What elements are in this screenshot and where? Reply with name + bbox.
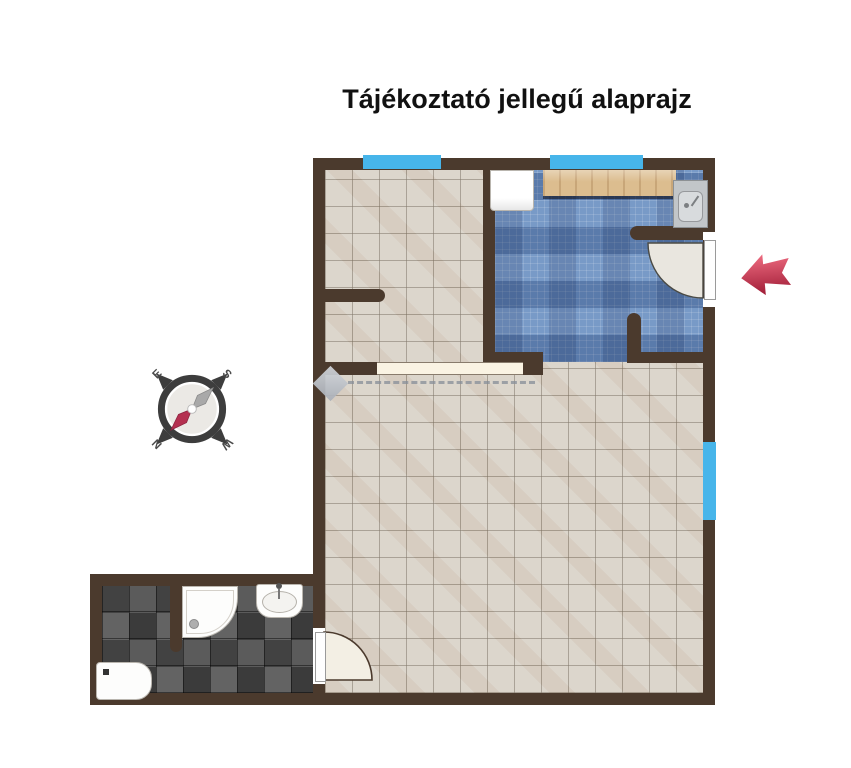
entrance-arrow-shape <box>739 252 791 297</box>
entrance-arrow-icon <box>738 247 796 301</box>
bathroom-door-leaf <box>315 632 326 682</box>
kitchen-sink <box>673 180 708 228</box>
window-top-right <box>550 155 643 169</box>
shower-drain <box>189 619 199 629</box>
kitchen-sink-basin <box>678 191 703 222</box>
washbasin <box>256 584 303 618</box>
page-title: Tájékoztató jellegű alaprajz <box>342 84 692 115</box>
window-right <box>703 442 716 520</box>
kitchen-counter <box>543 170 676 196</box>
kitchen-sink-drain <box>684 203 689 208</box>
compass-icon: E S W N <box>144 361 240 457</box>
wall-bottom <box>90 693 715 705</box>
watermark-dash-line <box>348 381 535 384</box>
floor-plan-canvas: Tájékoztató jellegű alaprajz <box>0 0 851 768</box>
wall-divider-corner <box>521 352 543 375</box>
entry-door-leaf <box>704 240 716 300</box>
compass-center-dot <box>188 405 197 414</box>
entry-door-swing-arc <box>640 235 710 305</box>
wall-stub-entry-vertical <box>627 313 641 363</box>
fridge <box>490 170 534 211</box>
wall-left <box>313 158 325 693</box>
toilet-flush-button <box>103 669 109 675</box>
wall-stub-left-room <box>321 289 385 302</box>
washbasin-tap-stem <box>278 589 280 599</box>
toilet <box>96 662 152 700</box>
wall-opening-band <box>377 362 523 375</box>
window-top-left <box>363 155 441 169</box>
wall-stub-bathroom <box>170 580 182 652</box>
bathroom-door-swing-arc <box>318 626 380 688</box>
